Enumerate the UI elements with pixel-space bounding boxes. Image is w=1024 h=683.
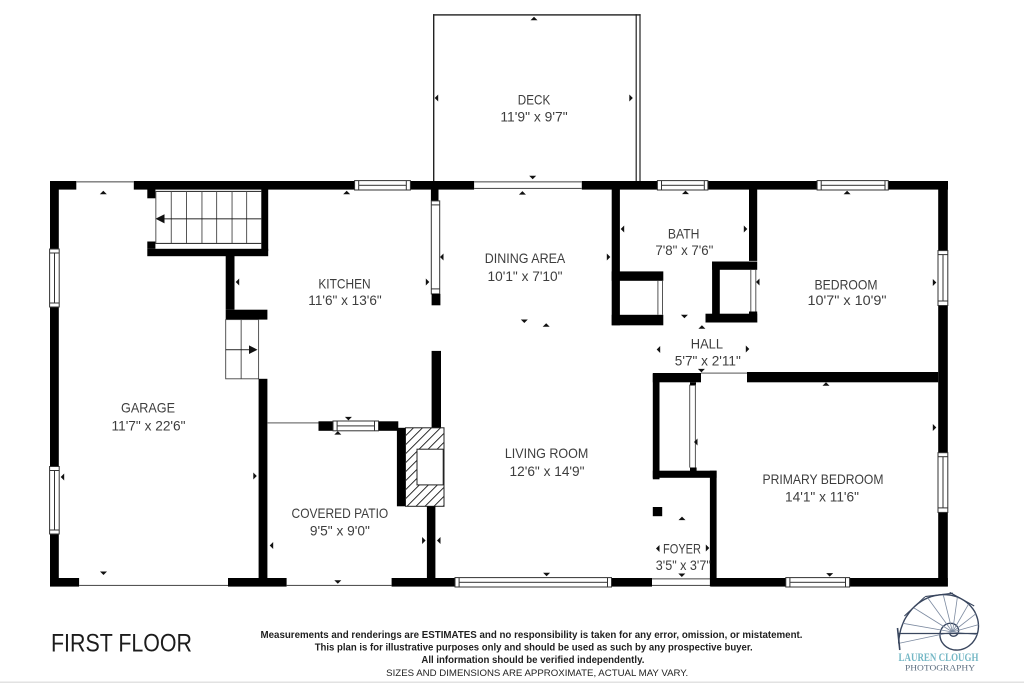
svg-text:PRIMARY BEDROOM: PRIMARY BEDROOM	[763, 471, 884, 487]
svg-text:GARAGE: GARAGE	[121, 400, 175, 416]
svg-text:3'5" x 3'7": 3'5" x 3'7"	[656, 557, 711, 573]
svg-text:FOYER: FOYER	[663, 541, 701, 557]
svg-text:This plan is for illustrative: This plan is for illustrative purposes o…	[315, 643, 753, 654]
svg-text:5'7" x 2'11": 5'7" x 2'11"	[675, 353, 741, 369]
svg-text:12'6" x 14'9": 12'6" x 14'9"	[510, 463, 585, 479]
svg-text:11'6" x 13'6": 11'6" x 13'6"	[308, 292, 381, 308]
svg-text:11'9" x 9'7": 11'9" x 9'7"	[500, 109, 567, 125]
svg-text:PHOTOGRAPHY: PHOTOGRAPHY	[905, 663, 975, 672]
svg-text:HALL: HALL	[691, 336, 723, 352]
svg-text:10'1" x 7'10": 10'1" x 7'10"	[488, 268, 563, 284]
svg-text:BEDROOM: BEDROOM	[815, 277, 878, 293]
svg-text:11'7" x 22'6": 11'7" x 22'6"	[112, 418, 186, 434]
svg-text:DECK: DECK	[518, 92, 551, 108]
svg-text:All information should be veri: All information should be verified indep…	[421, 655, 644, 666]
svg-text:DINING AREA: DINING AREA	[485, 250, 566, 266]
svg-text:SIZES AND DIMENSIONS ARE APPRO: SIZES AND DIMENSIONS ARE APPROXIMATE, AC…	[386, 668, 688, 679]
svg-text:LIVING ROOM: LIVING ROOM	[505, 445, 589, 461]
svg-text:9'5" x 9'0": 9'5" x 9'0"	[310, 523, 370, 539]
svg-text:10'7" x 10'9": 10'7" x 10'9"	[808, 292, 887, 308]
svg-text:14'1" x 11'6": 14'1" x 11'6"	[785, 489, 859, 505]
svg-text:Measurements and renderings ar: Measurements and renderings are ESTIMATE…	[261, 630, 803, 641]
svg-text:BATH: BATH	[668, 226, 700, 242]
svg-text:FIRST FLOOR: FIRST FLOOR	[51, 630, 192, 658]
svg-text:KITCHEN: KITCHEN	[318, 276, 370, 292]
svg-text:COVERED PATIO: COVERED PATIO	[292, 505, 389, 521]
svg-text:7'8" x 7'6": 7'8" x 7'6"	[655, 242, 713, 258]
svg-text:LAUREN CLOUGH: LAUREN CLOUGH	[899, 652, 979, 664]
